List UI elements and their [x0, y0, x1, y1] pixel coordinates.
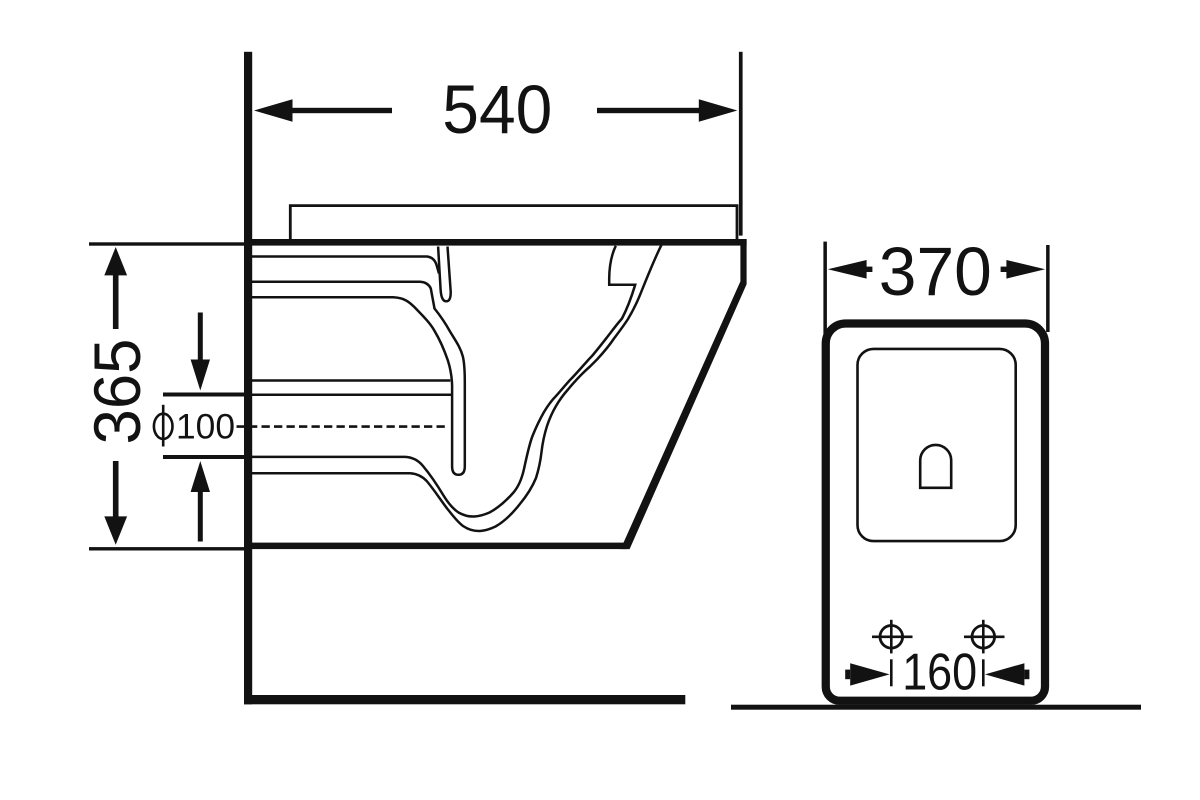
svg-text:160: 160	[902, 643, 977, 701]
svg-text:370: 370	[879, 233, 992, 310]
svg-text:540: 540	[442, 71, 552, 148]
svg-text:100: 100	[176, 406, 235, 446]
svg-text:365: 365	[80, 339, 154, 445]
